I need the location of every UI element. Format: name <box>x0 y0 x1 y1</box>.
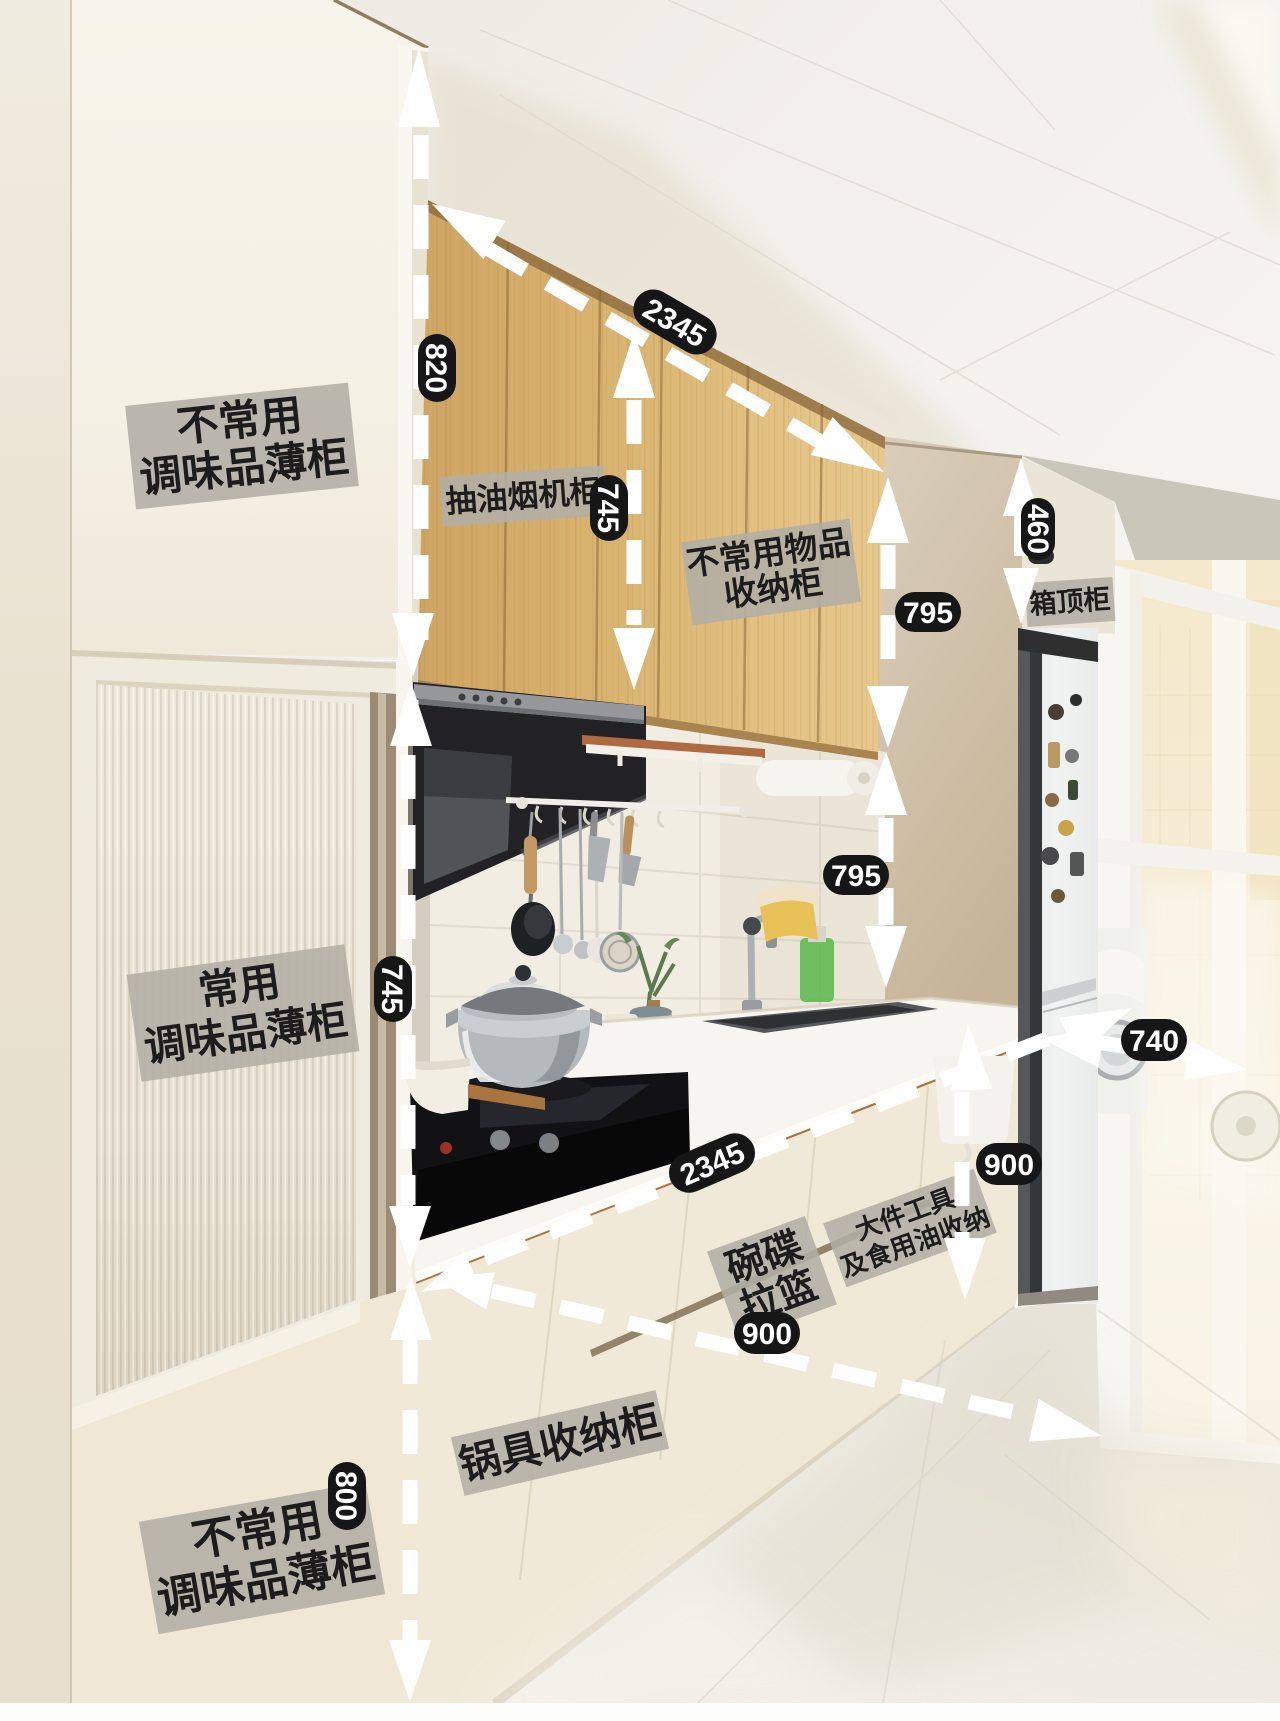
svg-text:795: 795 <box>831 860 881 893</box>
svg-text:740: 740 <box>1129 1025 1179 1058</box>
svg-text:460: 460 <box>1021 504 1054 554</box>
svg-text:900: 900 <box>742 1318 792 1351</box>
svg-text:900: 900 <box>984 1149 1034 1182</box>
svg-text:箱顶柜: 箱顶柜 <box>1028 583 1111 620</box>
svg-text:800: 800 <box>329 1471 362 1521</box>
svg-text:745: 745 <box>591 483 624 533</box>
svg-text:795: 795 <box>903 597 953 630</box>
svg-text:745: 745 <box>375 964 408 1014</box>
svg-text:820: 820 <box>419 343 452 393</box>
